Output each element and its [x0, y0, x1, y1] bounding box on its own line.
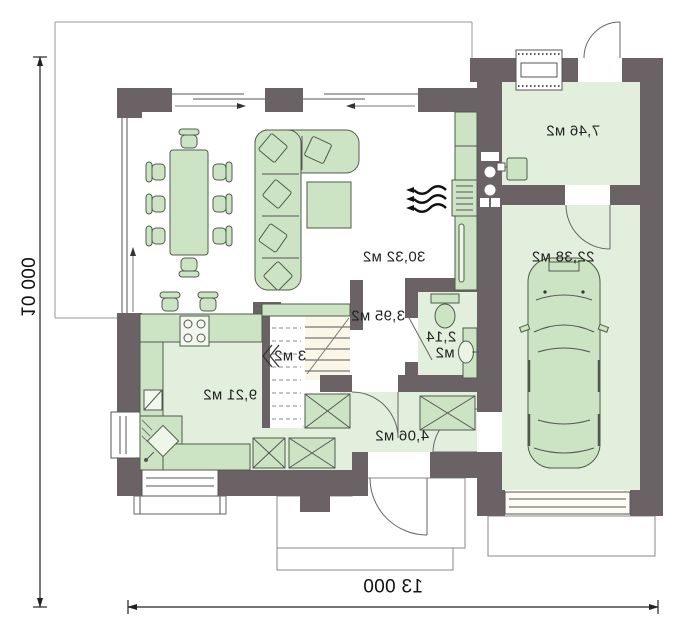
heat-waves-icon: [406, 186, 446, 212]
room-label-garage: 22,38 м2: [532, 250, 595, 265]
room-label-wc-line1: 2,14: [426, 330, 456, 345]
stove: [180, 316, 209, 346]
room-label-vestibule: 7,46 м2: [546, 124, 600, 139]
car: [520, 258, 609, 468]
dishwasher: [144, 390, 162, 410]
coffee-table: [307, 182, 351, 228]
kitchen-window-sill: [134, 496, 226, 514]
floor-plan: 30,32 м2 22,38 м2 7,46 м2 9,21 м2 4,06 м…: [0, 0, 700, 630]
room-label-wc-line2: м2: [435, 346, 454, 361]
garage-door: [505, 492, 630, 514]
fireplace: [452, 180, 477, 216]
room-label-kitchen: 9,21 м2: [203, 388, 257, 403]
room-label-living: 30,32 м2: [363, 250, 426, 265]
dimension-label-width: 13 000: [363, 578, 423, 597]
room-label-pantry: 3 м2: [274, 349, 306, 364]
dimension-label-height: 10 000: [18, 257, 37, 317]
dining-set: [146, 129, 232, 277]
room-label-stair-hall: 3,95 м2: [351, 309, 405, 324]
room-label-hall: 4,06 м2: [375, 429, 429, 444]
